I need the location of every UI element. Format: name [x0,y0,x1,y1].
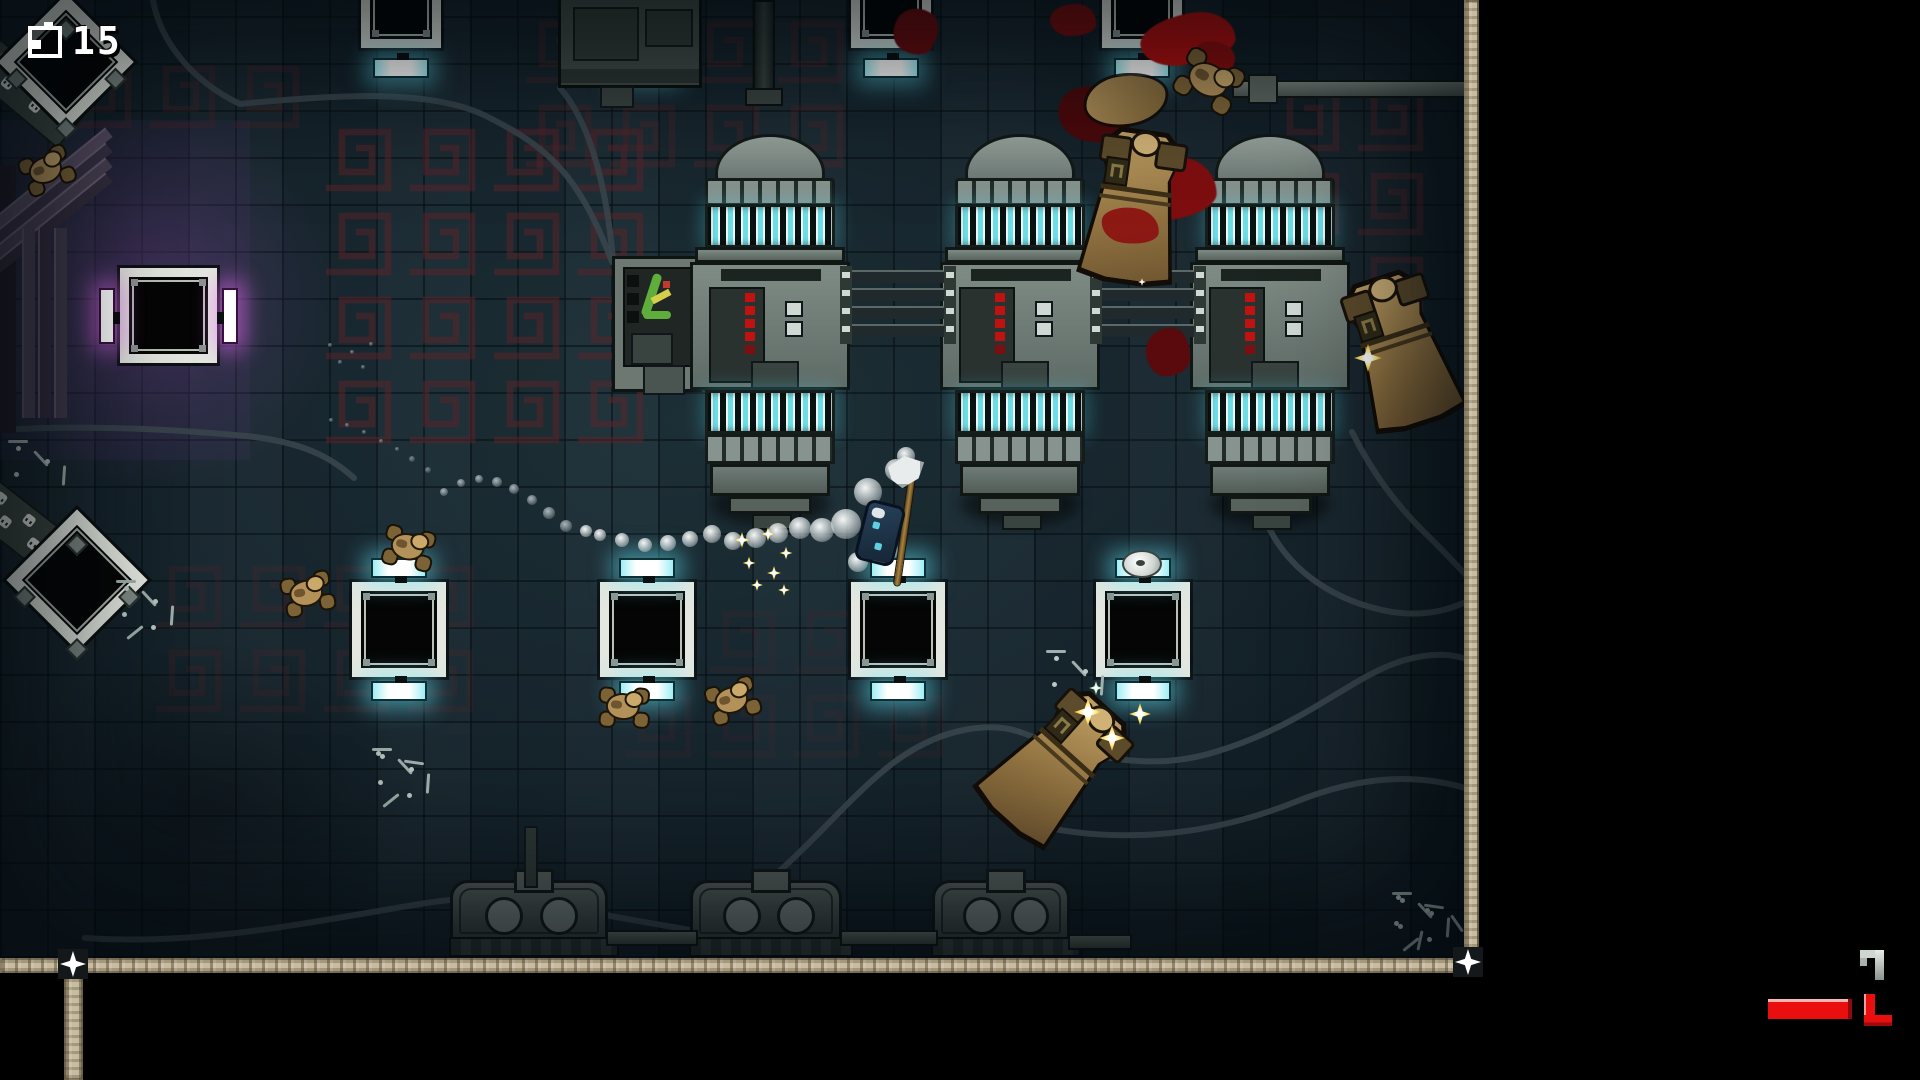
vent [1285,321,1303,337]
bar-notch [1139,676,1151,683]
bar-notch [395,576,407,583]
bone [126,625,143,640]
hatch [1001,361,1049,389]
bar-notch [643,676,655,683]
generator-machine [690,132,850,534]
smoke-puff [379,439,383,443]
bone-knob [1083,669,1088,674]
wall-stub [64,971,83,1080]
armor-plate [871,507,886,520]
eye [3,80,6,84]
out-of-map [1479,0,1920,1080]
port-hole [485,897,523,935]
red-led [745,319,755,328]
back-patch [611,700,623,709]
pad-stud [1107,593,1114,600]
vent [785,301,803,317]
arch-row [955,178,1085,206]
eye [33,545,36,549]
arch-row [1205,178,1335,206]
base-taper [710,464,830,496]
emblem-mark [1060,723,1071,735]
pad-stud [676,593,683,600]
base-taper [978,496,1062,514]
emblem-mark [1053,717,1064,729]
red-led [1245,306,1255,315]
red-led [1245,319,1255,328]
smoke-puff [345,423,349,427]
bone [1450,914,1464,932]
smoke-puff [682,531,698,547]
vent [1285,301,1303,317]
pad-stud [862,659,869,666]
cyan-light-bar [1115,681,1171,701]
base-taper [960,464,1080,496]
pad-stud [363,593,370,600]
base-taper [728,496,812,514]
smoke-puff [350,350,354,354]
dome-cap [965,134,1075,182]
smoke-puff [425,467,431,473]
body-slot [1221,269,1321,281]
generator-machine [940,132,1100,534]
wire-red [663,281,670,288]
ledge [695,247,845,263]
floor-hatch-pad [600,582,694,677]
pad-inner [863,594,933,665]
robed-zombie [1072,125,1196,288]
smoke-puff [543,507,555,519]
purple-light-bar [99,288,115,344]
wall-right [1464,0,1479,973]
map-fragment-glyph [1860,950,1888,984]
slat-window-bottom [705,390,835,434]
bumper-unit [450,880,608,942]
dome-cap [1215,134,1325,182]
bone-knob [151,625,156,630]
bone [8,440,28,443]
bone [62,465,66,485]
panel [645,9,693,47]
bumper-ring [459,888,599,934]
ledge [945,247,1095,263]
hud-counter: 15 [28,22,122,60]
rail-stud [1196,326,1204,332]
arch-row-bottom [1205,434,1335,464]
base-nub [1002,514,1042,530]
wire-green [643,311,671,319]
bone-knob [1400,898,1405,903]
node-star [60,951,86,977]
octagon-ridge [38,228,51,418]
rail-bar [848,306,944,319]
rail-stud [842,290,850,296]
floor-hatch-pad [851,582,945,677]
arch-row-bottom [705,434,835,464]
smoke-puff [594,529,606,541]
hatch [1251,361,1299,389]
rail-stud [1092,326,1100,332]
bone [116,580,136,583]
pad-stud [428,659,435,666]
rail-stud [946,326,954,332]
skeleton-debris [1392,892,1462,962]
wall-node [58,949,88,979]
rail-bar [848,270,944,283]
console-port [627,275,639,287]
bone-knob [122,612,127,617]
red-led [745,293,755,302]
bone-knob [1429,911,1434,916]
vent [1035,321,1053,337]
eye [1,519,4,523]
pad-stud [611,593,618,600]
wall-tab [600,86,634,108]
cyan-light-bar [863,58,919,78]
crawler-zombie [596,682,647,728]
pad-stud [927,659,934,666]
pad-inner [373,0,429,36]
bone [170,605,174,625]
pad-stud [1172,593,1179,600]
rail-stud [1196,272,1204,278]
slat-window-top [1205,204,1335,248]
bone-knob [153,599,158,604]
smoke-puff [328,343,332,347]
bar-notch [887,53,899,60]
rail-end [944,266,956,344]
pipe-joint [1248,74,1278,104]
rail-bar [1098,288,1194,301]
panel [573,7,639,61]
pipe [524,826,538,888]
emblem-mark [1119,165,1124,178]
rail-stud [946,290,954,296]
red-led [995,306,1005,315]
bone-knob [124,586,129,591]
bar-notch [894,676,906,683]
floor-hatch-pad [120,268,217,363]
armor-light [872,521,880,529]
pad-stud [927,593,934,600]
smoke-puff [746,528,766,548]
console-port [627,293,639,305]
bone [1392,892,1412,895]
rail-stud [1196,308,1204,314]
crawler-zombie [278,567,333,617]
bone [1046,650,1066,653]
purple-light-bar [222,288,238,344]
rail-group [848,270,944,340]
pipe [606,930,698,946]
bone-knob [1396,895,1401,900]
rail-stud [946,272,954,278]
game-viewport[interactable]: 15 [0,0,1920,1080]
red-led [995,319,1005,328]
rail-bar [848,288,944,301]
slat-window-top [955,204,1085,248]
smoke-puff [789,517,811,539]
pad-stud [199,345,206,352]
bone-knob [1425,908,1430,913]
smoke-puff [810,518,834,542]
rail-bar [848,324,944,337]
pipe [753,0,775,100]
ammo-corner-icon [1864,994,1894,1026]
eye [29,541,32,545]
console-hatch [631,333,673,365]
pad-stud [611,659,618,666]
smoke-puff [409,456,415,462]
rail-stud [946,308,954,314]
console-port [627,311,639,323]
pad-stud [131,345,138,352]
cyan-light-bar [373,58,429,78]
bone-knob [1427,937,1432,942]
blood-splat [1050,4,1096,36]
floor-hatch-pad [361,0,441,48]
port-hole [1011,897,1049,935]
smoke-puff [660,535,676,551]
smoke-puff [440,488,448,496]
red-led [1245,345,1255,354]
out-of-map [0,971,1920,1080]
machine-body [1190,262,1350,390]
bumper-base [931,937,1081,957]
smoke-puff [362,430,366,434]
bone-knob [16,446,21,451]
skeleton-debris [8,440,78,510]
rail-stud [1196,290,1204,296]
pad-stud [862,30,869,37]
slat-window-top [705,204,835,248]
bumper-tab [986,869,1026,893]
blood-splat [1146,328,1190,376]
pipe-flange [745,88,783,106]
cyan-light-bar [870,681,926,701]
skull-dot [0,514,13,529]
smoke-puff [615,533,629,547]
eye [25,518,28,522]
bone-knob [1054,656,1059,661]
wall-node [1453,947,1483,977]
smoke-puff [638,538,652,552]
rail-stud [842,308,850,314]
smoke-puff [475,475,483,483]
smoke-puff [457,479,465,487]
slat-window-bottom [955,390,1085,434]
rail-stud [842,326,850,332]
rail-end [1194,266,1206,344]
base-taper [1228,496,1312,514]
red-led [745,306,755,315]
console-foot [643,365,685,395]
pad-stud [1172,659,1179,666]
red-led [995,345,1005,354]
rail-bar [1098,306,1194,319]
pipe [1068,934,1132,950]
bumper-base [449,937,619,957]
pipe [840,930,938,946]
pad-inner [132,280,205,351]
bone [1100,675,1104,695]
smoke-puff [492,477,502,487]
armor-light [874,542,882,550]
smoke-puff [329,418,333,422]
octagon-ridge [54,228,67,418]
cyan-light-bar [619,558,675,578]
pad-stud [372,30,379,37]
smoke-puff [361,365,365,369]
rail-stud [1092,290,1100,296]
arch-row [705,178,835,206]
machine-body [690,262,850,390]
bumper-unit [690,880,842,942]
vent [785,321,803,337]
slat-window-bottom [1205,390,1335,434]
smoke-puff [338,360,342,364]
port-hole [777,897,815,935]
body-slot [971,269,1071,281]
bar-notch [643,576,655,583]
smoke-puff [580,525,592,537]
vent [1035,301,1053,317]
eye [0,499,3,503]
rail-stud [842,272,850,278]
red-led [745,345,755,354]
red-led [1245,332,1255,341]
eye [29,521,32,525]
pad-stud [199,279,206,286]
bone [426,773,430,793]
wire-console [612,256,702,392]
red-led [995,332,1005,341]
smoke-puff [395,447,399,451]
machine-body [940,262,1100,390]
bar-notch [397,53,409,60]
skull-dot [21,513,36,528]
arch-row-bottom [955,434,1085,464]
pad-stud [676,659,683,666]
eye [31,104,34,108]
eye [5,522,8,526]
bone-knob [45,459,50,464]
bone-knob [1394,921,1399,926]
bar-notch [217,312,224,324]
dome-cap [715,134,825,182]
base-taper [1210,464,1330,496]
ledge [1195,247,1345,263]
node-star [1455,949,1481,975]
emblem-mark [1110,163,1115,176]
charge-pack-icon [28,22,60,54]
smoke-puff [831,509,861,539]
red-led [995,293,1005,302]
rail-stud [1092,308,1100,314]
red-led [1245,293,1255,302]
player-character [858,496,918,596]
wall-bottom [0,958,1479,973]
bone-knob [1398,924,1403,929]
counter-value: 15 [72,22,122,60]
smoke-puff [509,484,519,494]
bumper-base [689,937,853,957]
smoke-puff [369,342,373,346]
octagon-ridge [22,228,35,418]
item-detail [1136,560,1145,566]
bumper-unit [932,880,1070,942]
red-led [745,332,755,341]
smoke-puff [703,525,721,543]
pad-inner [612,594,682,665]
emblem [1103,156,1131,187]
item-pickup [1122,550,1162,578]
bone [1416,930,1423,950]
body-slot [721,269,821,281]
rail-end [840,266,852,344]
smoke-puff [527,495,537,505]
wall-block [558,0,702,88]
pad-inner [1108,594,1178,665]
base-nub [1252,514,1292,530]
pad-stud [428,593,435,600]
health-bar [1768,999,1852,1019]
hatch [751,361,799,389]
port-hole [963,897,1001,935]
port-hole [540,897,578,935]
bone [1446,917,1450,937]
shadow-zone [0,640,420,960]
pad-stud [131,279,138,286]
panel [561,69,699,83]
pad-stud [423,30,430,37]
eye [35,107,38,111]
pad-stud [1113,30,1120,37]
bone-knob [14,472,19,477]
emblem-mark [1370,318,1377,331]
smoke-puff [560,520,572,532]
bar-notch [113,312,120,324]
bumper-tab [751,869,791,893]
